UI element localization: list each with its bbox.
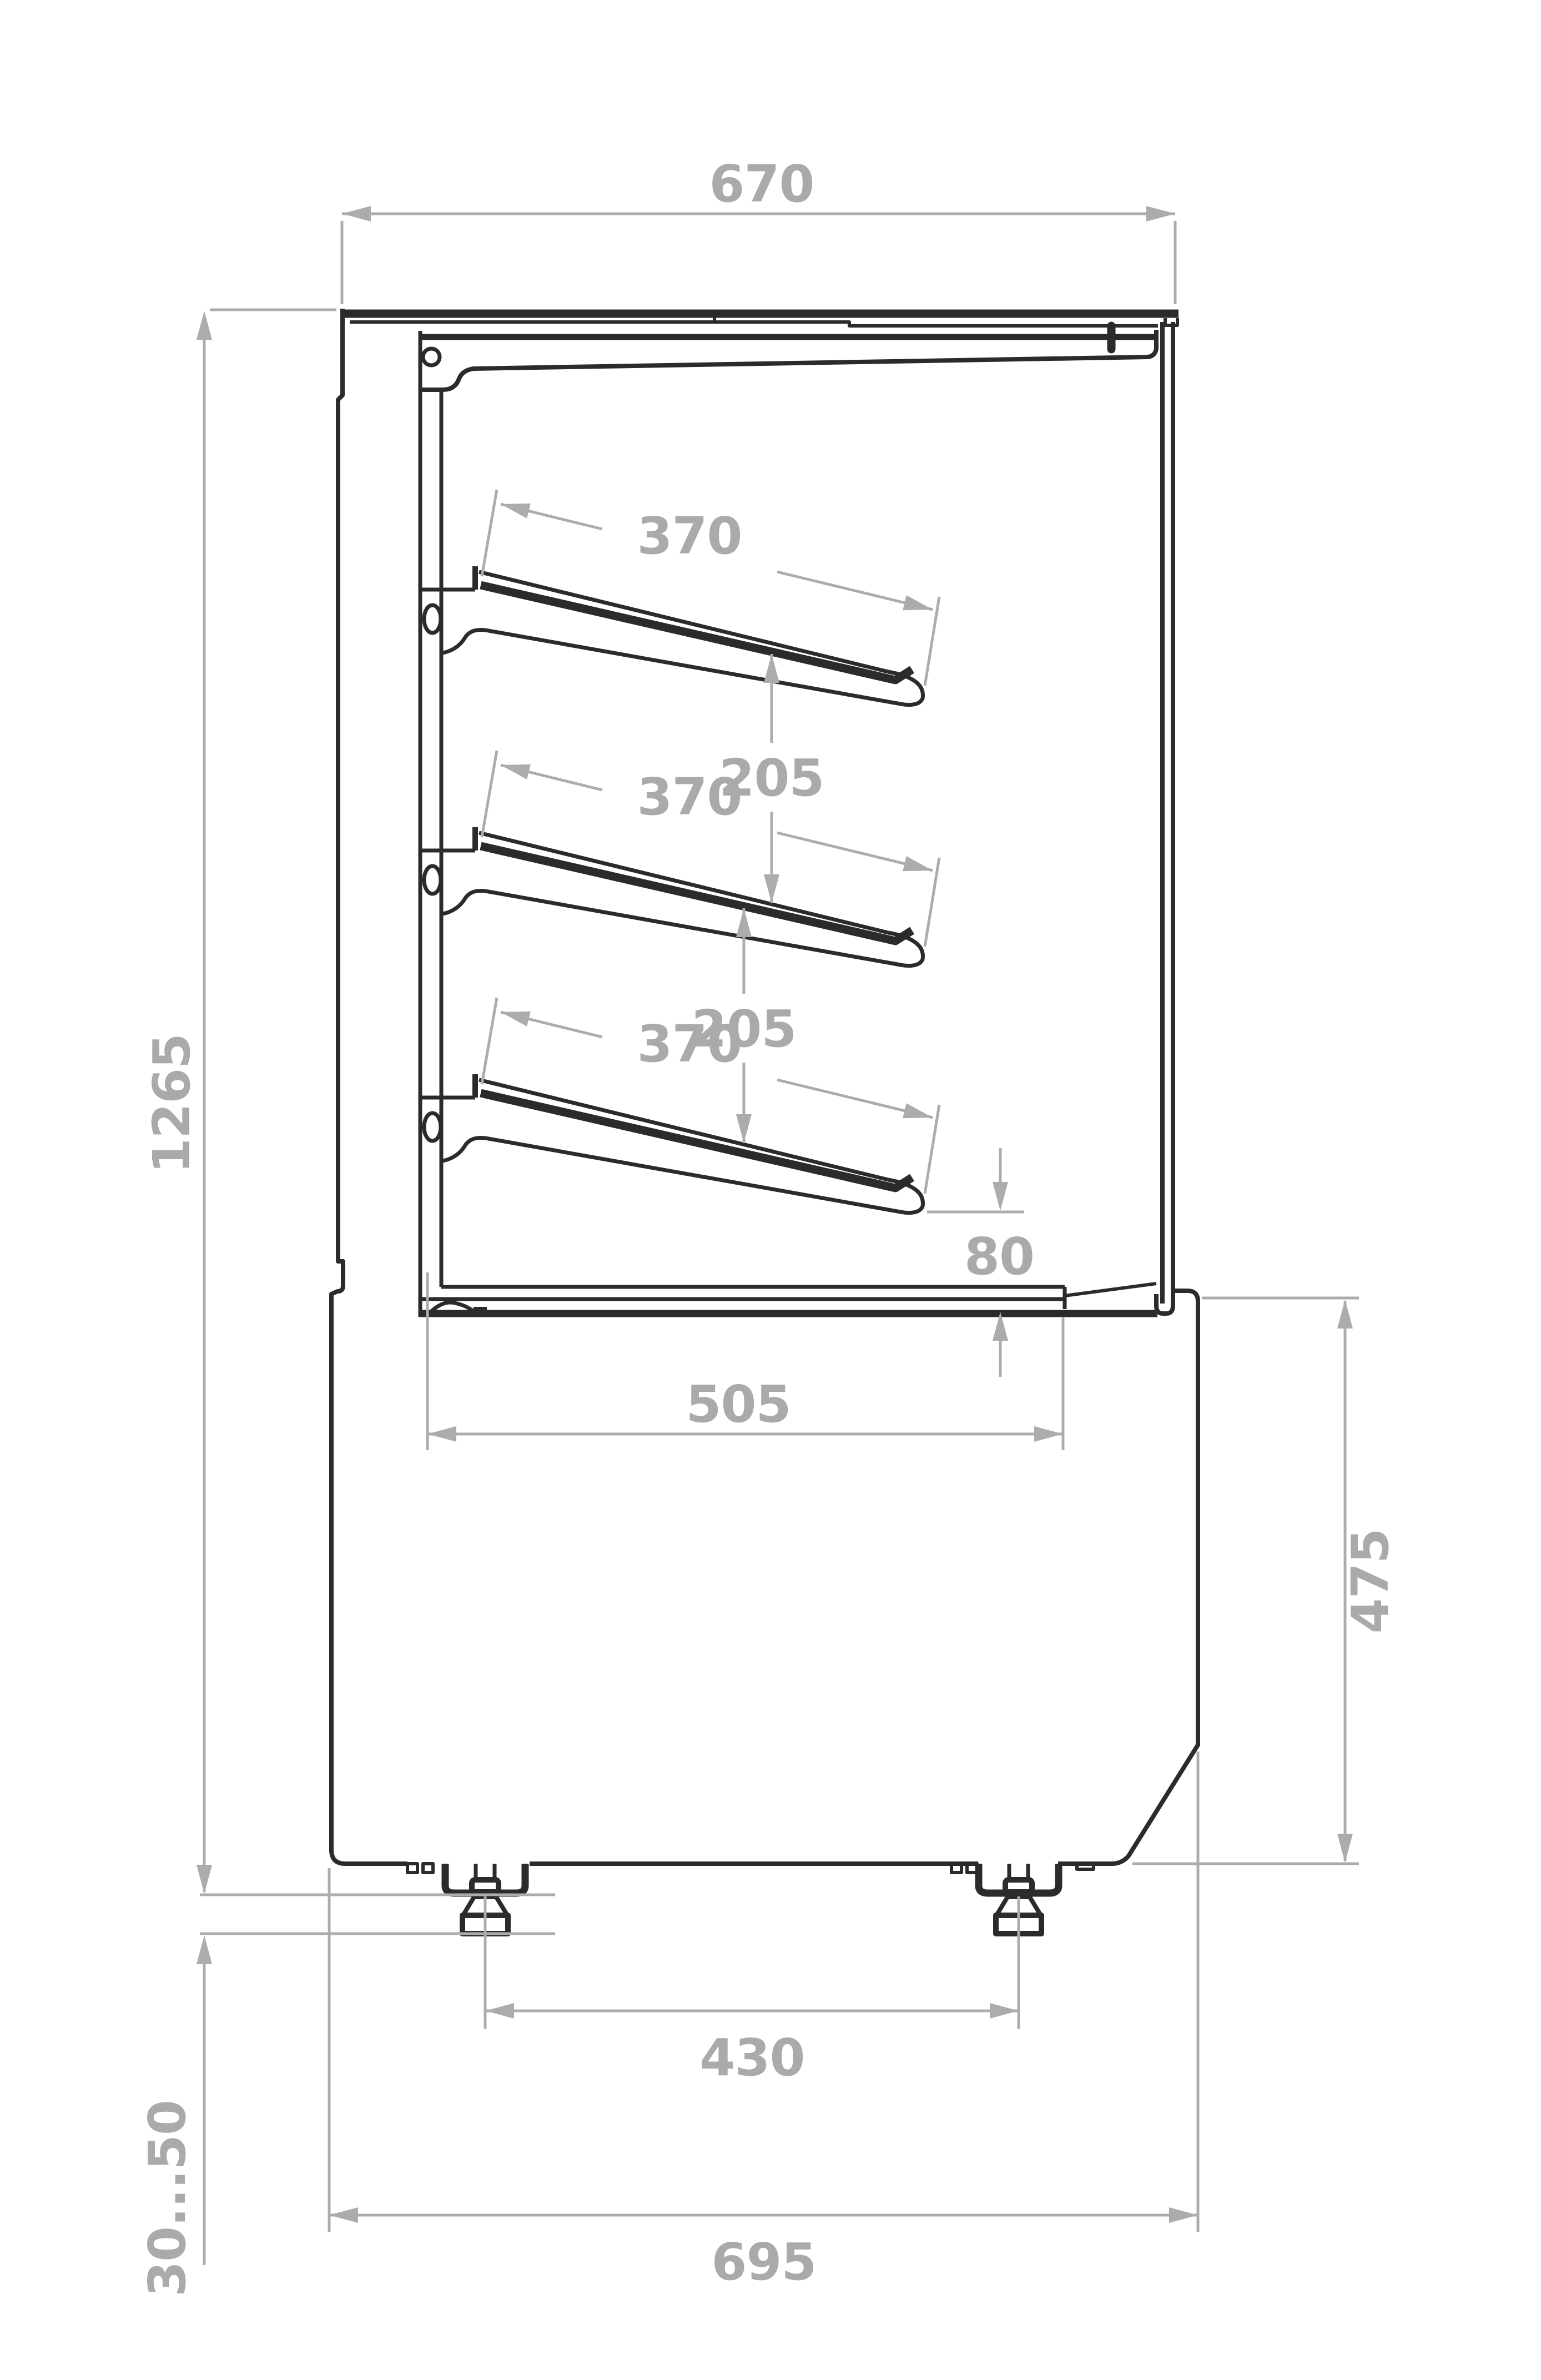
arrowhead	[499, 757, 531, 779]
arrowhead	[1337, 1300, 1353, 1329]
base-cabinet	[407, 1291, 1198, 1873]
dim-top-depth: 670	[342, 154, 1175, 304]
dim-overall-height: 1265	[142, 310, 336, 1894]
cabinet-outline	[331, 309, 1198, 1934]
shelf-3	[420, 1074, 923, 1213]
technical-drawing: 670 1265 370 205	[0, 0, 1541, 2380]
arrowhead	[499, 1004, 531, 1027]
drawing-page: 670 1265 370 205	[0, 0, 1541, 2380]
shelf-top-edge	[479, 572, 888, 672]
shelf-mount-hole	[424, 1113, 441, 1141]
arrowhead	[499, 496, 531, 519]
shelf-mount-hole	[424, 866, 441, 894]
bottom-tab	[423, 1864, 433, 1873]
arrowhead	[903, 1103, 934, 1125]
extension-line	[482, 751, 497, 837]
arrowhead	[197, 1935, 212, 1964]
bottom-tab	[951, 1864, 961, 1873]
arrowhead	[736, 908, 752, 937]
arrowhead	[485, 2003, 514, 2019]
dim-430-label: 430	[699, 2028, 804, 2087]
extension-line	[482, 490, 497, 576]
arrowhead	[427, 1426, 456, 1442]
dimensions: 670 1265 370 205	[138, 154, 1400, 2297]
arrowhead	[764, 874, 779, 903]
bottom-tab	[407, 1864, 417, 1873]
dim-670-label: 670	[709, 154, 814, 214]
dim-475-label: 475	[1341, 1528, 1400, 1633]
dim-695-label: 695	[711, 2232, 816, 2292]
arrowhead	[1146, 206, 1175, 222]
shelf-top-edge	[479, 1080, 888, 1180]
shelf-top-edge	[479, 833, 888, 933]
dim-370-label-1: 370	[637, 506, 742, 566]
arrowhead	[903, 856, 934, 878]
foot-nut	[1005, 1880, 1032, 1892]
canopy	[342, 314, 1179, 390]
extension-line	[482, 998, 497, 1084]
shelf-1	[420, 566, 923, 705]
arrowhead	[736, 1114, 752, 1143]
dim-feet-spacing: 430	[485, 1896, 1019, 2087]
glass-front	[1162, 322, 1173, 1304]
dim-foot-range: 30...50	[138, 1895, 555, 2297]
arrowhead	[1337, 1834, 1353, 1863]
interior-back-panel	[420, 331, 441, 1317]
arrowhead	[990, 2003, 1019, 2019]
arrowhead	[764, 654, 779, 683]
arrowhead	[197, 311, 212, 340]
deck-glass-seat	[1065, 1284, 1156, 1296]
dim-30-50-label: 30...50	[138, 2100, 197, 2297]
dim-370-label-2: 370	[637, 767, 742, 827]
deck-gasket-pad	[474, 1307, 487, 1313]
dim-505-label: 505	[686, 1375, 790, 1434]
arrowhead	[1034, 1426, 1063, 1442]
arrowhead	[993, 1182, 1008, 1211]
dim-80-label: 80	[964, 1227, 1034, 1286]
base-front-top-corner	[1173, 1291, 1198, 1301]
dim-base-height: 475	[1132, 1298, 1400, 1864]
dim-1265-label: 1265	[142, 1034, 202, 1174]
dim-deck-clearance: 80	[927, 1148, 1034, 1377]
arrowhead	[197, 1865, 212, 1894]
dim-base-depth: 695	[329, 1752, 1198, 2292]
foot-nut	[472, 1880, 498, 1892]
arrowhead	[903, 595, 934, 617]
arrowhead	[329, 2207, 358, 2223]
canopy-mount-hole	[423, 349, 440, 365]
shelf-2	[420, 827, 923, 966]
arrowhead	[342, 206, 371, 222]
canopy-underside-line	[350, 322, 1158, 326]
dim-370-label-3: 370	[637, 1014, 742, 1074]
arrowhead	[1169, 2207, 1198, 2223]
shelf-mount-hole	[424, 605, 441, 633]
deck	[419, 1284, 1173, 1317]
back-wall-and-base-left-profile	[331, 309, 407, 1864]
bottom-tab	[1077, 1864, 1094, 1869]
base-front-face-and-chamfer	[1058, 1301, 1198, 1864]
